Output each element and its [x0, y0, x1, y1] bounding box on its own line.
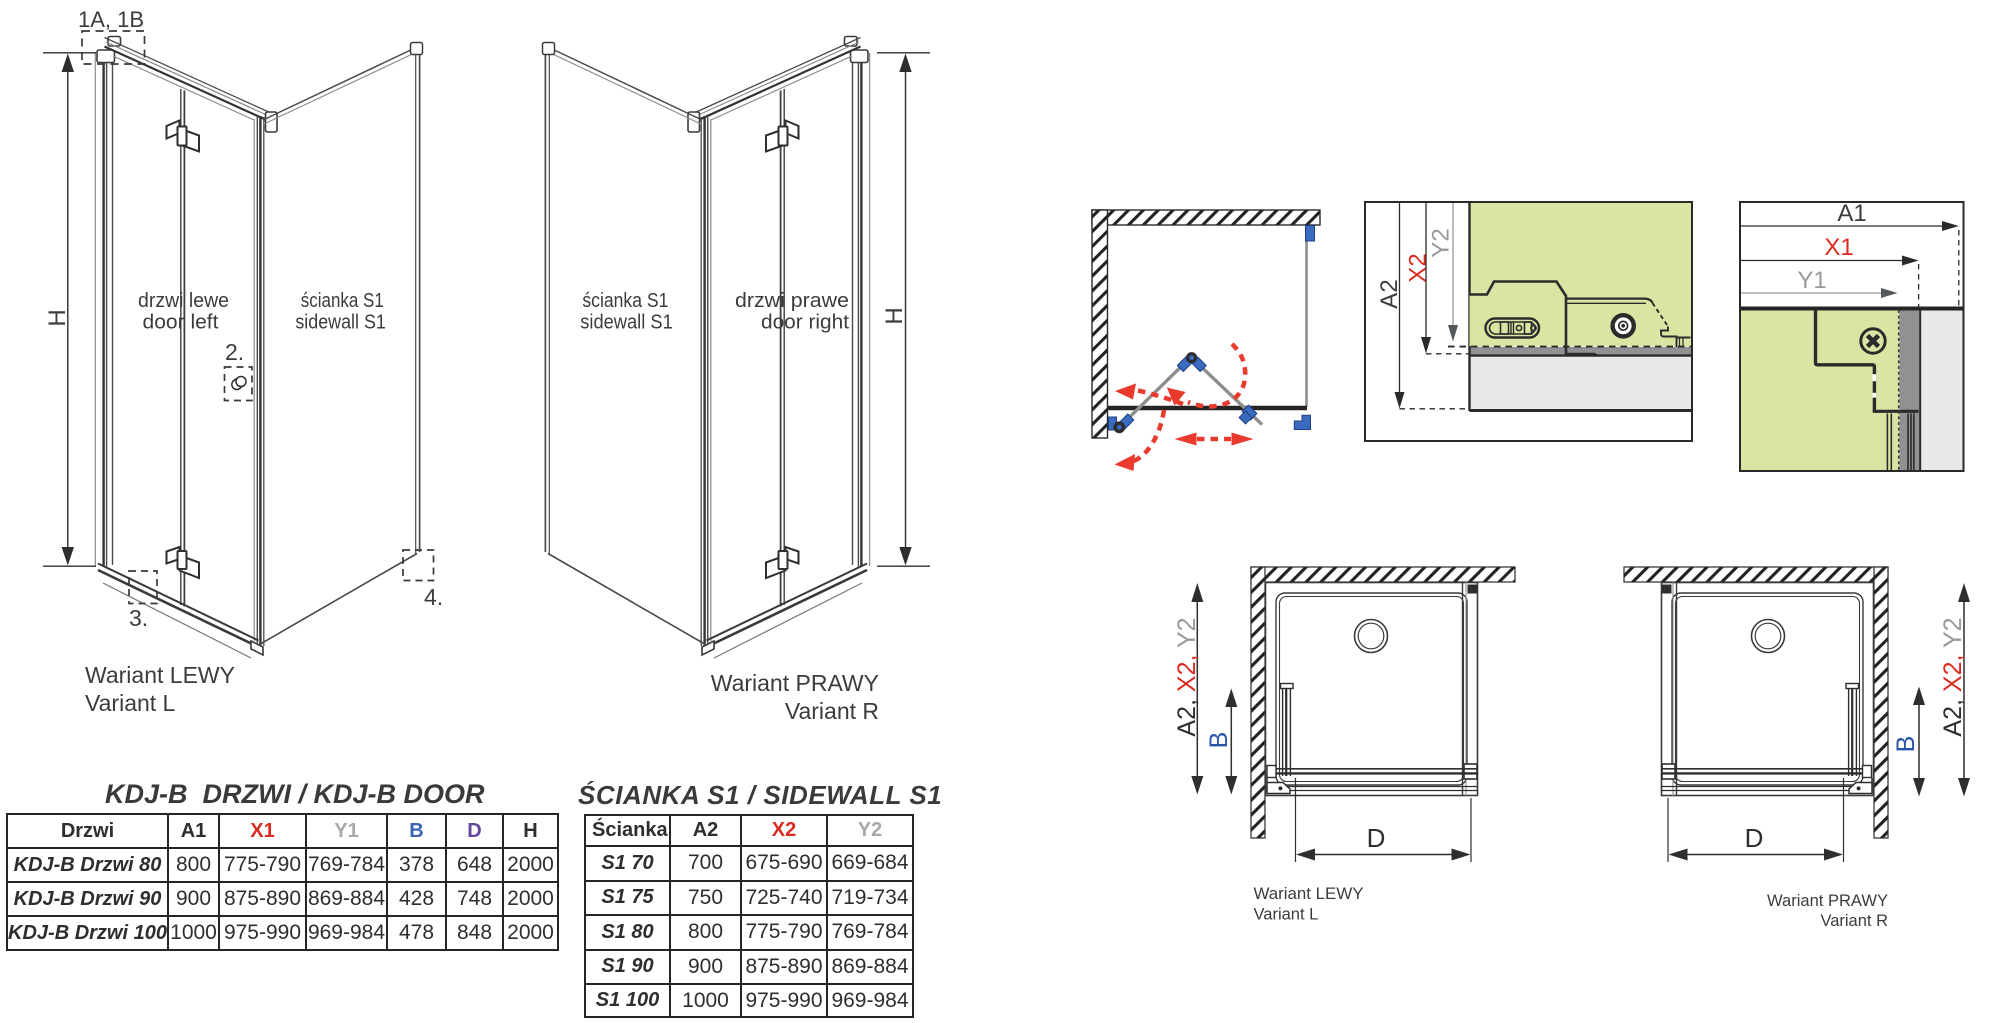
svg-text:Variant R: Variant R — [1820, 912, 1888, 930]
svg-text:Y1: Y1 — [1797, 267, 1826, 294]
svg-text:drzwi prawe: drzwi prawe — [735, 290, 849, 312]
svg-text:ścianka S1: ścianka S1 — [582, 290, 668, 312]
svg-text:4.: 4. — [424, 584, 443, 610]
svg-text:D: D — [1367, 823, 1386, 853]
svg-text:ścianka S1: ścianka S1 — [301, 290, 384, 312]
svg-text:A2: A2 — [1376, 279, 1403, 308]
svg-text:Y2: Y2 — [1428, 228, 1455, 257]
svg-text:Wariant PRAWY: Wariant PRAWY — [1767, 892, 1888, 910]
svg-text:Wariant PRAWY: Wariant PRAWY — [711, 670, 879, 696]
svg-text:2.: 2. — [225, 339, 244, 365]
svg-text:sidewall S1: sidewall S1 — [580, 312, 673, 334]
svg-text:drzwi lewe: drzwi lewe — [138, 290, 229, 312]
svg-text:door left: door left — [143, 312, 219, 334]
svg-text:sidewall S1: sidewall S1 — [295, 312, 386, 334]
svg-text:H: H — [881, 307, 908, 324]
svg-text:3.: 3. — [129, 605, 148, 631]
svg-text:B: B — [1892, 736, 1920, 753]
svg-text:door right: door right — [761, 312, 849, 334]
svg-text:Variant R: Variant R — [785, 698, 879, 724]
svg-text:Variant L: Variant L — [85, 690, 176, 716]
svg-text:H: H — [44, 309, 71, 326]
svg-text:X1: X1 — [1824, 234, 1853, 261]
svg-text:A2, X2, Y2: A2, X2, Y2 — [1939, 617, 1967, 736]
svg-text:D: D — [1745, 823, 1764, 853]
svg-text:1A, 1B: 1A, 1B — [78, 7, 144, 32]
svg-text:A2, X2, Y2: A2, X2, Y2 — [1173, 617, 1201, 736]
svg-text:A1: A1 — [1837, 200, 1866, 227]
svg-text:B: B — [1205, 732, 1233, 749]
svg-text:Wariant LEWY: Wariant LEWY — [1254, 885, 1364, 903]
svg-text:Wariant LEWY: Wariant LEWY — [85, 662, 235, 688]
svg-text:Variant L: Variant L — [1254, 906, 1319, 924]
